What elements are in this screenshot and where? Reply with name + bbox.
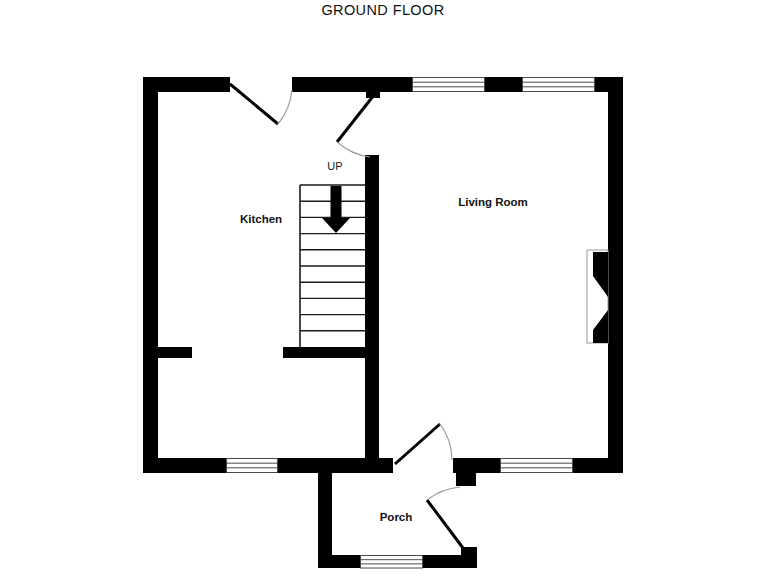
page-title: GROUND FLOOR: [321, 2, 444, 18]
wall-bottom-livingroom-left: [453, 458, 500, 473]
wall-right: [608, 77, 623, 473]
walls: [143, 77, 623, 568]
kitchen-label: Kitchen: [240, 213, 282, 225]
stairs-direction-arrow-icon: [322, 186, 350, 233]
stairs-up-label: UP: [327, 160, 342, 172]
windows: [227, 78, 595, 569]
wall-kitchen-stub: [157, 347, 192, 358]
window-livingroom-bottom: [501, 459, 573, 473]
door-kitchen-hall: [337, 95, 374, 157]
porch-label: Porch: [380, 511, 413, 523]
wall-top-middle: [292, 77, 412, 92]
staircase: UP: [300, 160, 365, 347]
wall-porch-door-jamb: [456, 473, 476, 486]
wall-stairs-bottom: [283, 347, 372, 358]
door-livingroom-porch: [395, 424, 452, 464]
door-kitchen-back: [230, 84, 292, 124]
wall-bottom-kitchen-left: [143, 458, 226, 473]
wall-left: [143, 77, 158, 473]
floor-plan-canvas: GROUND FLOOR: [0, 0, 768, 576]
window-kitchen-bottom: [227, 459, 278, 473]
wall-kitchen-livingroom-divider: [365, 155, 379, 473]
wall-top-between-windows: [485, 77, 522, 92]
window-porch-bottom: [361, 556, 423, 569]
window-top-right: [523, 78, 595, 92]
wall-bottom-livingroom-right: [573, 458, 623, 473]
doors: [230, 84, 463, 548]
room-labels: Kitchen Living Room Porch: [240, 196, 528, 523]
door-porch-front: [427, 487, 463, 548]
fireplace: [587, 250, 608, 343]
wall-porch-bottom-left: [318, 555, 360, 568]
wall-porch-left: [318, 465, 332, 568]
wall-porch-corner: [461, 547, 477, 568]
living-room-label: Living Room: [458, 196, 528, 208]
floor-plan: GROUND FLOOR: [0, 0, 768, 576]
window-top-left: [413, 78, 485, 92]
